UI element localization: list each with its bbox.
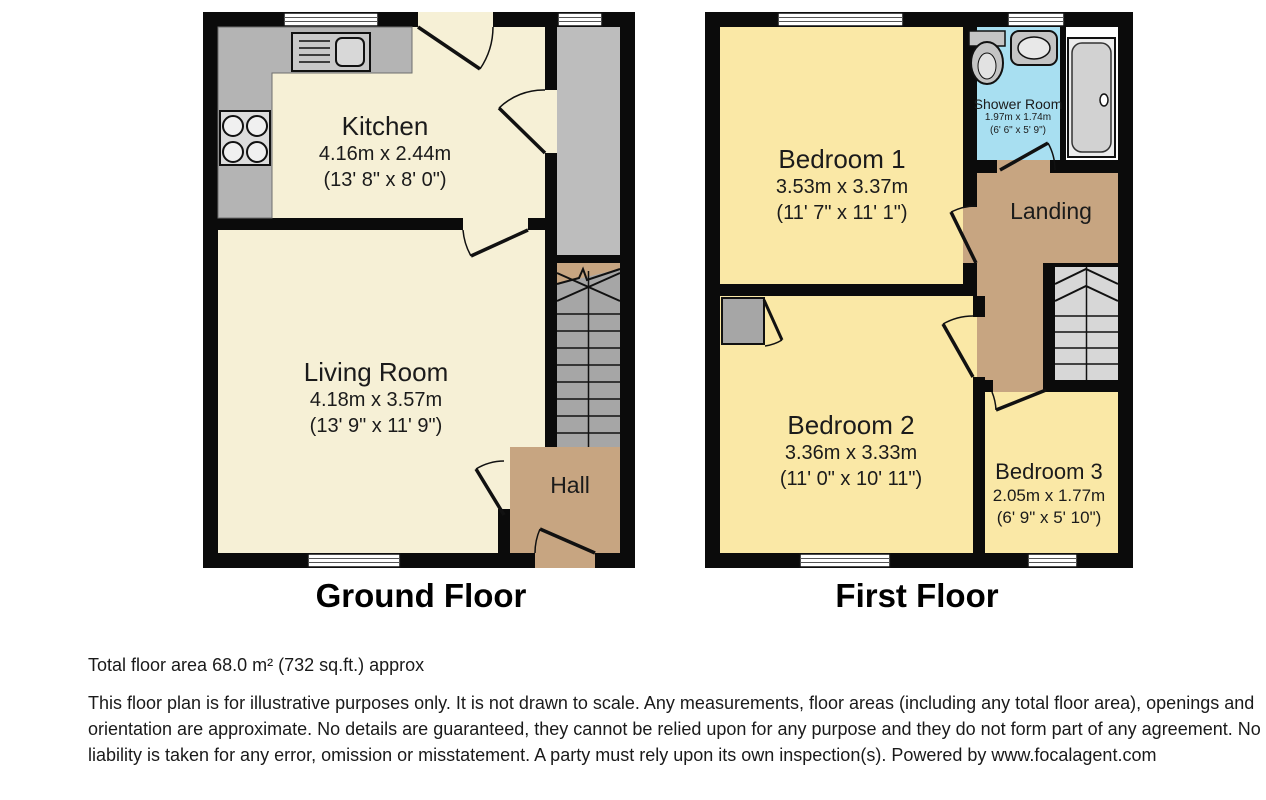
room-name: Kitchen [319, 111, 451, 142]
front-door-opening [535, 553, 595, 568]
ground-floor-title: Ground Floor [316, 577, 527, 615]
room-dims-imperial: (6' 6" x 5' 9") [974, 125, 1063, 138]
floorplan-page: Kitchen 4.16m x 2.44m (13' 8" x 8' 0") L… [0, 0, 1266, 800]
room-label-bedroom-1: Bedroom 1 3.53m x 3.37m (11' 7" x 11' 1"… [776, 144, 908, 226]
store-area [557, 27, 620, 255]
toilet-icon [969, 31, 1005, 84]
kitchen-sink-icon [292, 33, 370, 71]
bath-icon [1068, 38, 1115, 157]
shower-window-icon [1008, 13, 1064, 26]
room-name: Hall [550, 472, 590, 500]
room-label-shower-room: Shower Room 1.97m x 1.74m (6' 6" x 5' 9"… [974, 96, 1063, 137]
room-dims-imperial: (13' 9" x 11' 9") [304, 414, 449, 440]
kitchen-hob-icon [220, 111, 270, 165]
room-name: Bedroom 1 [776, 144, 908, 175]
first-floor-title: First Floor [835, 577, 998, 615]
room-dims-metric: 3.53m x 3.37m [776, 175, 908, 201]
disclaimer-text: This floor plan is for illustrative purp… [88, 691, 1266, 769]
room-dims-imperial: (11' 0" x 10' 11") [780, 467, 922, 493]
room-name: Landing [1010, 198, 1092, 226]
room-label-hall: Hall [550, 472, 590, 500]
bedroom1-window-icon [778, 13, 903, 26]
room-dims-metric: 4.18m x 3.57m [304, 388, 449, 414]
basin-icon [1011, 31, 1057, 65]
room-label-bedroom-3: Bedroom 3 2.05m x 1.77m (6' 9" x 5' 10") [993, 459, 1105, 529]
room-label-landing: Landing [1010, 198, 1092, 226]
room-label-living-room: Living Room 4.18m x 3.57m (13' 9" x 11' … [304, 357, 449, 439]
room-dims-imperial: (13' 8" x 8' 0") [319, 168, 451, 194]
total-floor-area: Total floor area 68.0 m² (732 sq.ft.) ap… [88, 655, 424, 676]
room-label-kitchen: Kitchen 4.16m x 2.44m (13' 8" x 8' 0") [319, 111, 451, 193]
room-dims-imperial: (6' 9" x 5' 10") [993, 507, 1105, 529]
room-dims-imperial: (11' 7" x 11' 1") [776, 201, 908, 227]
room-label-bedroom-2: Bedroom 2 3.36m x 3.33m (11' 0" x 10' 11… [780, 410, 922, 492]
bedroom3-window-icon [1028, 554, 1077, 567]
bedroom2-window-icon [800, 554, 890, 567]
hall-area [510, 447, 620, 553]
store-window-icon [558, 13, 602, 26]
room-dims-metric: 4.16m x 2.44m [319, 142, 451, 168]
room-dims-metric: 3.36m x 3.33m [780, 441, 922, 467]
room-dims-metric: 2.05m x 1.77m [993, 485, 1105, 507]
landing-area-lower [977, 265, 1043, 392]
room-name: Shower Room [974, 96, 1063, 112]
back-door-opening [418, 12, 493, 27]
room-name: Living Room [304, 357, 449, 388]
kitchen-window-icon [284, 13, 378, 26]
living-room-window-icon [308, 554, 400, 567]
room-name: Bedroom 3 [993, 459, 1105, 485]
room-name: Bedroom 2 [780, 410, 922, 441]
room-dims-metric: 1.97m x 1.74m [974, 112, 1063, 125]
